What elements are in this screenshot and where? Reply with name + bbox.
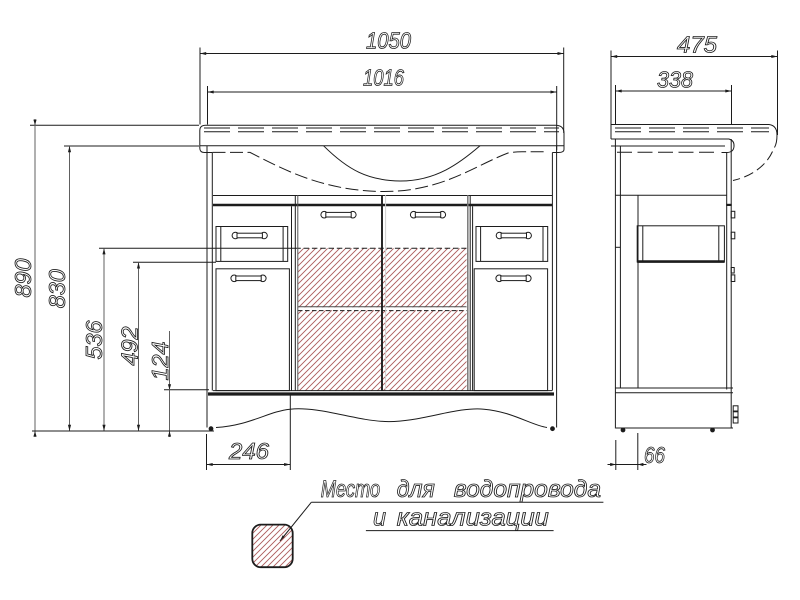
svg-text:124: 124: [147, 342, 173, 381]
svg-text:1050: 1050: [366, 28, 411, 54]
svg-text:Место: Место: [321, 476, 380, 503]
svg-text:338: 338: [657, 67, 693, 93]
svg-text:водопровода: водопровода: [454, 476, 601, 503]
svg-text:492: 492: [116, 326, 142, 365]
svg-text:890: 890: [10, 258, 36, 297]
svg-text:канализации: канализации: [397, 505, 549, 532]
svg-text:536: 536: [81, 320, 107, 359]
svg-text:475: 475: [677, 31, 717, 57]
svg-text:1016: 1016: [363, 65, 404, 91]
svg-text:246: 246: [228, 438, 269, 464]
svg-text:для: для: [397, 476, 435, 503]
svg-text:66: 66: [644, 442, 665, 468]
svg-text:830: 830: [44, 269, 70, 308]
svg-text:и: и: [373, 505, 386, 532]
